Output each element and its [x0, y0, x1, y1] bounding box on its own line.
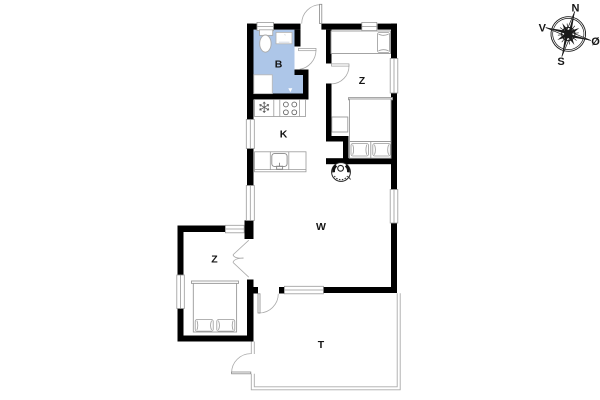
svg-text:B: B — [275, 59, 283, 71]
svg-text:Ø: Ø — [591, 36, 600, 48]
svg-text:V: V — [539, 23, 547, 35]
svg-text:Z: Z — [359, 75, 366, 87]
svg-text:N: N — [572, 3, 580, 15]
svg-text:Z: Z — [211, 254, 218, 266]
svg-text:W: W — [316, 221, 326, 233]
svg-text:T: T — [318, 339, 325, 351]
svg-text:S: S — [557, 56, 564, 68]
svg-text:K: K — [280, 129, 288, 141]
